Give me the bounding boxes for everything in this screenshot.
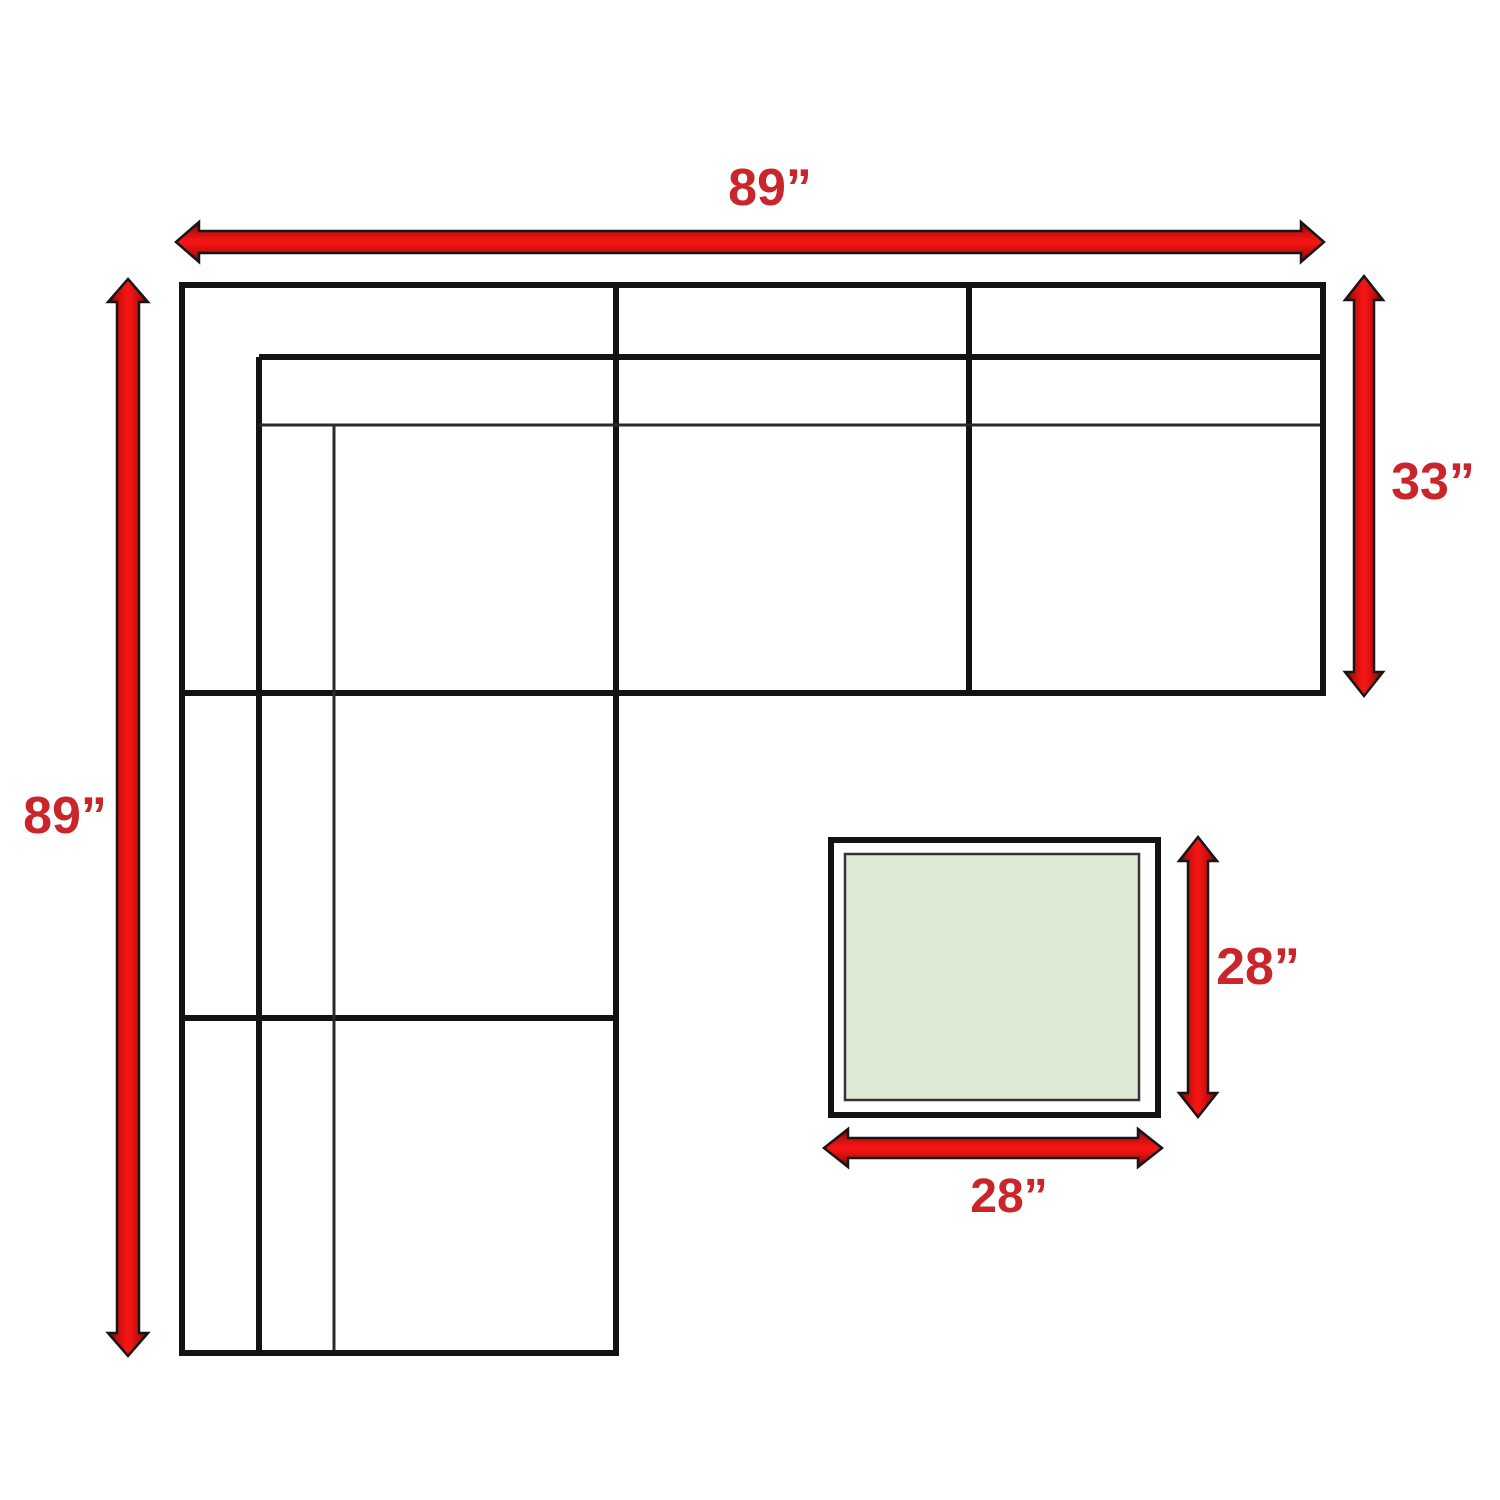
- svg-text:89”: 89”: [23, 787, 107, 845]
- svg-text:89”: 89”: [728, 159, 812, 217]
- svg-text:28”: 28”: [1216, 938, 1300, 996]
- svg-text:33”: 33”: [1391, 453, 1475, 511]
- svg-text:28”: 28”: [970, 1170, 1047, 1223]
